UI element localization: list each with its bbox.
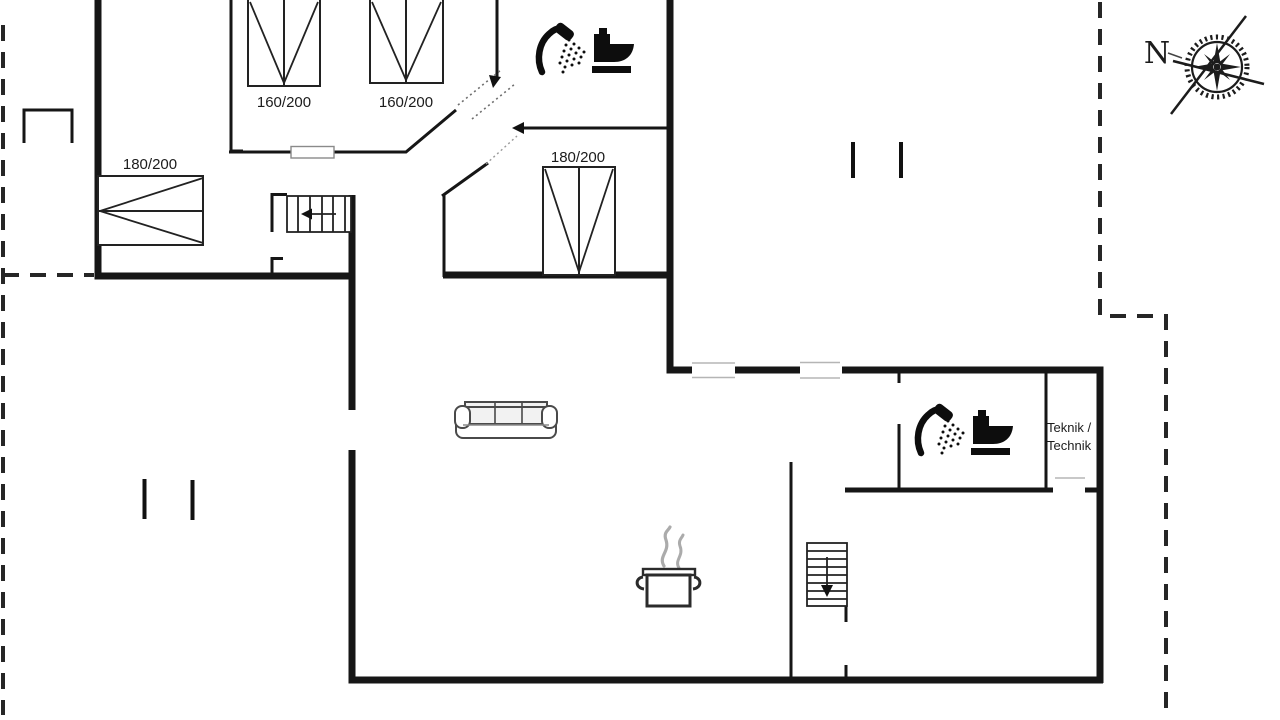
- door-opening: [291, 147, 334, 159]
- bed-180x200-left: [98, 176, 203, 245]
- utility-room-label-line2: Technik: [1047, 438, 1092, 453]
- door-leaf-dotted: [458, 70, 515, 119]
- stairs-up-icon: [287, 196, 351, 232]
- north-label: N: [1144, 36, 1170, 71]
- compass-rose-icon: [1171, 16, 1264, 114]
- door-hinge-arrow: [512, 122, 524, 134]
- toilet-icon: [971, 410, 1013, 455]
- wall-tick-marks: [143, 142, 904, 520]
- exterior-walls: [98, 0, 1103, 683]
- sofa-icon: [455, 402, 557, 438]
- cooking-pot-icon: [637, 527, 700, 606]
- bed-180x200-middle: [543, 167, 615, 275]
- window-openings: [692, 363, 1085, 479]
- floor-plan-drawing: 180/200 160/200 160/200 180/200: [0, 0, 1280, 720]
- entrance-step-marker: [24, 110, 72, 143]
- bed-label: 180/200: [123, 156, 177, 173]
- toilet-icon: [592, 28, 634, 73]
- door-hinge-arrow: [489, 75, 501, 88]
- bed-label: 180/200: [551, 149, 605, 166]
- shower-icon: [539, 21, 586, 73]
- utility-room-label-line1: Teknik /: [1047, 420, 1091, 435]
- bed-160x200-second: [370, 0, 443, 83]
- shower-icon: [918, 402, 965, 454]
- property-boundary-dashed: [3, 2, 1166, 715]
- bed-label: 160/200: [257, 94, 311, 111]
- utility-room-label: Teknik / Technik: [1047, 420, 1092, 453]
- bed-label: 160/200: [379, 94, 433, 111]
- bed-160x200-first: [248, 0, 320, 86]
- door-leaf-dotted: [486, 136, 517, 164]
- floor-plan: 180/200 160/200 160/200 180/200: [0, 0, 1280, 720]
